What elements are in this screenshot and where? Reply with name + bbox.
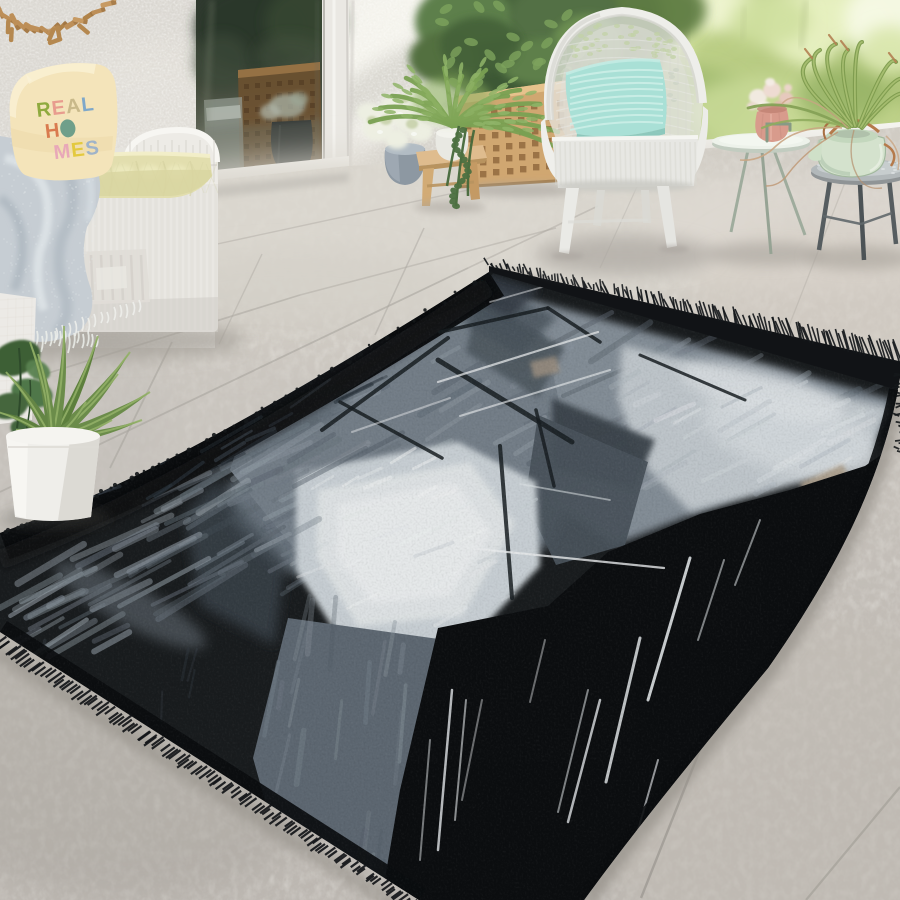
svg-text:H: H bbox=[44, 119, 62, 143]
